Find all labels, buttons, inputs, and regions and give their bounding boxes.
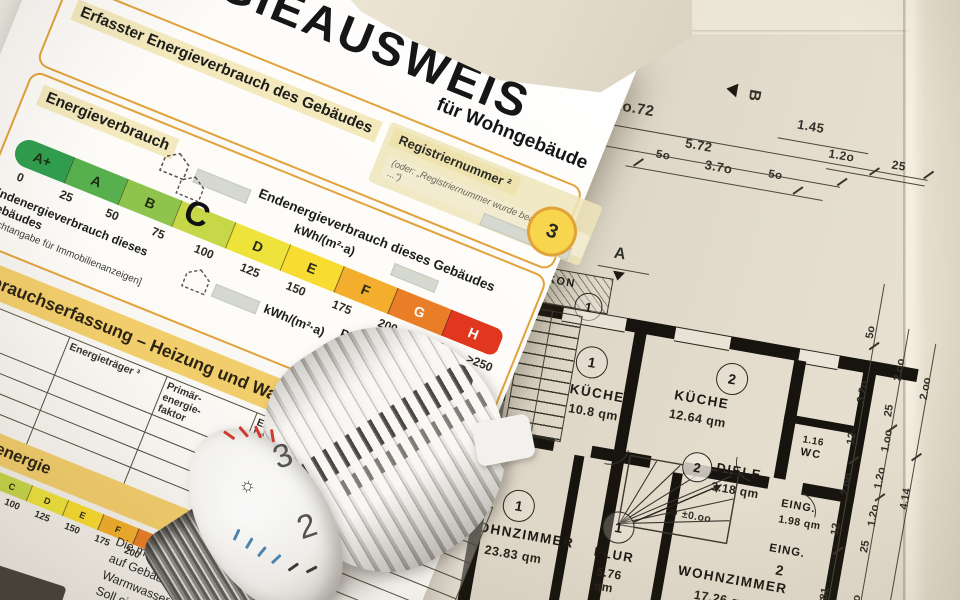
red-tick-icon — [223, 430, 235, 440]
room-area: 17.26 qm — [693, 588, 752, 600]
unit-label: kWh/(m²·a) — [262, 302, 327, 339]
blue-tick-icon — [233, 529, 241, 541]
room-label: WC — [799, 446, 822, 462]
dial-number-low: 2 — [292, 505, 322, 547]
dimension-label: 5.72 — [684, 135, 714, 155]
red-tick-icon — [254, 425, 262, 438]
dimension-label: 5o — [864, 325, 878, 340]
value-placeholder — [211, 283, 261, 314]
dimension-label: 1.2o — [828, 146, 856, 164]
section-arrow-icon — [725, 82, 738, 98]
section-marker-b: B — [744, 88, 764, 103]
dimension-label: 5.1o — [848, 594, 864, 600]
photo-scene: 1o.72 5.72 1.45 5o 3.7o 5o 1.2o 25 A B …… — [0, 0, 960, 600]
house-marker-icon — [180, 264, 213, 296]
room-badge: 2 — [714, 360, 751, 397]
dimension-tick — [923, 171, 934, 179]
section-marker-a: A — [613, 245, 628, 265]
room-area: 23.83 qm — [483, 543, 542, 567]
blue-tick-icon — [245, 537, 254, 549]
room-label: EING. — [768, 542, 806, 560]
room-area: 2 — [774, 562, 785, 579]
blue-tick-icon — [271, 554, 282, 564]
room-badge: 1 — [573, 344, 610, 381]
room-area: 5.76 qm — [593, 564, 623, 596]
blue-tick-icon — [257, 546, 267, 557]
dimension-label: 25 — [858, 540, 872, 554]
dimension-label: 25 — [882, 404, 896, 418]
dimension-tick — [633, 158, 644, 166]
black-tick-icon — [306, 565, 318, 573]
red-tick-icon — [238, 426, 249, 438]
dimension-label: 4.14 — [898, 487, 914, 510]
dimension-label: 2.oo — [918, 377, 934, 401]
dimension-label: 12 — [845, 432, 859, 446]
dimension-tick — [837, 178, 848, 186]
dimension-label: 4.81 — [816, 587, 832, 600]
wall — [625, 318, 676, 339]
black-tick-icon — [288, 562, 300, 571]
dimension-label: 1.45 — [796, 117, 826, 137]
dimension-label: 5o — [767, 168, 783, 182]
section-arrow-icon — [612, 271, 625, 282]
sun-symbol-icon: ☼ — [234, 472, 261, 500]
dimension-label: 12 — [829, 522, 843, 536]
dimension-label: 1.2o — [872, 466, 888, 490]
room-area: 10.8 qm — [567, 401, 619, 423]
dimension-label: 3.7o — [704, 157, 734, 177]
dimension-tick — [793, 186, 804, 194]
dimension-label: 1.2o — [866, 504, 882, 528]
wall — [729, 336, 800, 361]
room-area: 12.64 qm — [668, 407, 727, 431]
dimension-label: 5o — [655, 148, 671, 162]
window-symbol — [674, 327, 732, 351]
dimension-label: 25 — [891, 158, 908, 174]
